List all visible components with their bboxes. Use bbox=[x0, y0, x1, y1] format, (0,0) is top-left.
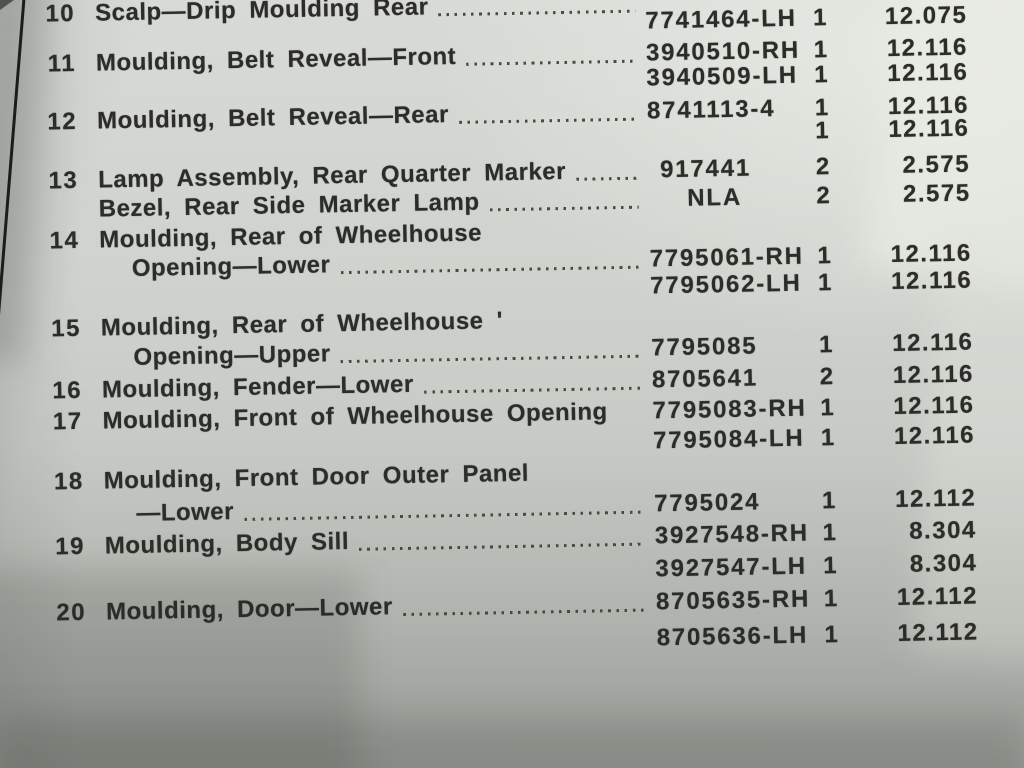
group-number: 12.116 bbox=[841, 329, 973, 359]
quantity: 1 bbox=[810, 269, 841, 298]
part-number: 7795083-RH bbox=[652, 394, 812, 425]
quantity: 1 bbox=[809, 242, 840, 271]
item-number: 15 bbox=[0, 315, 81, 344]
item-number bbox=[2, 501, 84, 503]
group-number: 2.575 bbox=[838, 180, 970, 210]
part-description: Bezel, Rear Side Marker Lamp bbox=[98, 189, 479, 224]
part-number: 7795085 bbox=[651, 332, 811, 363]
quantity: 1 bbox=[816, 621, 847, 650]
group-number: 12.116 bbox=[837, 115, 969, 145]
group-number: 2.575 bbox=[838, 151, 970, 181]
group-number: 12.116 bbox=[843, 422, 975, 452]
item-number: 16 bbox=[0, 377, 82, 406]
group-number: 8.304 bbox=[845, 550, 977, 580]
part-description: Moulding, Front Door Outer Panel bbox=[103, 460, 529, 496]
quantity: 1 bbox=[816, 585, 847, 614]
item-number bbox=[1, 438, 83, 440]
part-description: Opening—Upper bbox=[133, 340, 331, 372]
item-number: 19 bbox=[3, 533, 85, 562]
group-number: 12.116 bbox=[840, 267, 972, 297]
quantity: 2 bbox=[808, 153, 839, 182]
item-number: 17 bbox=[0, 408, 82, 437]
part-number: 8705635-RH bbox=[656, 585, 816, 616]
catalog-page-photo: 10 Scalp—Drip Moulding Rear 7741463-RH 7… bbox=[0, 0, 1024, 768]
quantity: 1 bbox=[813, 424, 844, 453]
group-number bbox=[843, 452, 975, 454]
item-number: 14 bbox=[0, 227, 80, 256]
quantity: 1 bbox=[812, 394, 843, 423]
quantity: 1 bbox=[815, 519, 846, 548]
item-number bbox=[0, 196, 78, 198]
quantity bbox=[809, 213, 839, 214]
item-number bbox=[0, 256, 80, 258]
part-number: NLA bbox=[648, 183, 808, 214]
part-number: 7795061-RH bbox=[649, 243, 809, 274]
group-number: 8.304 bbox=[845, 517, 977, 547]
part-number: 3927547-LH bbox=[655, 552, 815, 583]
item-number: 20 bbox=[4, 599, 86, 628]
group-number: 12.116 bbox=[842, 392, 974, 422]
quantity: 1 bbox=[815, 552, 846, 581]
dot-leader bbox=[403, 609, 646, 616]
part-number: 7741464-LH bbox=[645, 5, 805, 36]
quantity bbox=[813, 454, 843, 455]
dot-leader bbox=[341, 355, 642, 364]
part-number: 8705636-LH bbox=[656, 621, 816, 652]
group-number: 12.112 bbox=[846, 582, 978, 612]
group-number: 12.116 bbox=[839, 240, 971, 270]
item-number bbox=[0, 345, 81, 347]
quantity: 2 bbox=[812, 363, 843, 392]
item-number bbox=[0, 18, 75, 20]
group-number: 12.112 bbox=[846, 618, 978, 648]
part-description: —Lower bbox=[136, 498, 234, 528]
quantity: 1 bbox=[805, 4, 836, 33]
part-number: 8705641 bbox=[652, 364, 812, 395]
part-number: 917441 bbox=[648, 154, 808, 185]
group-number: 12.116 bbox=[836, 59, 968, 89]
quantity: 1 bbox=[807, 117, 838, 146]
quantity: 1 bbox=[811, 331, 842, 360]
quantity: 1 bbox=[806, 61, 837, 90]
part-number bbox=[649, 214, 809, 217]
dot-leader bbox=[359, 543, 645, 551]
part-description: Moulding, Fender—Lower bbox=[102, 371, 414, 405]
group-number bbox=[841, 299, 973, 301]
part-number: 7795084-LH bbox=[653, 424, 813, 455]
quantity: 2 bbox=[808, 182, 839, 211]
part-number: 3940509-LH bbox=[646, 62, 806, 93]
item-number bbox=[3, 566, 85, 568]
group-number bbox=[839, 211, 971, 213]
part-number bbox=[651, 302, 811, 305]
part-number: 3927548-RH bbox=[655, 519, 815, 550]
parts-table: 10 Scalp—Drip Moulding Rear 7741463-RH 7… bbox=[0, 0, 1024, 768]
dot-leader bbox=[576, 177, 638, 181]
part-description: Moulding, Rear of Wheelhouse ' bbox=[101, 307, 503, 342]
part-description: Moulding, Body Sill bbox=[105, 528, 350, 560]
part-description: Moulding, Door—Lower bbox=[106, 593, 393, 626]
quantity: 1 bbox=[814, 487, 845, 516]
item-number: 13 bbox=[0, 167, 78, 196]
dot-leader bbox=[244, 511, 644, 521]
group-number: 12.075 bbox=[835, 2, 967, 32]
dot-leader bbox=[424, 387, 642, 394]
dot-leader bbox=[490, 206, 639, 212]
part-number: 7795062-LH bbox=[650, 270, 810, 301]
item-number: 18 bbox=[1, 468, 83, 497]
group-number: 12.116 bbox=[842, 361, 974, 391]
part-number: 7795024 bbox=[654, 487, 814, 518]
quantity bbox=[811, 301, 841, 302]
item-number bbox=[5, 635, 87, 637]
group-number: 12.112 bbox=[844, 485, 976, 515]
item-number bbox=[0, 75, 76, 77]
